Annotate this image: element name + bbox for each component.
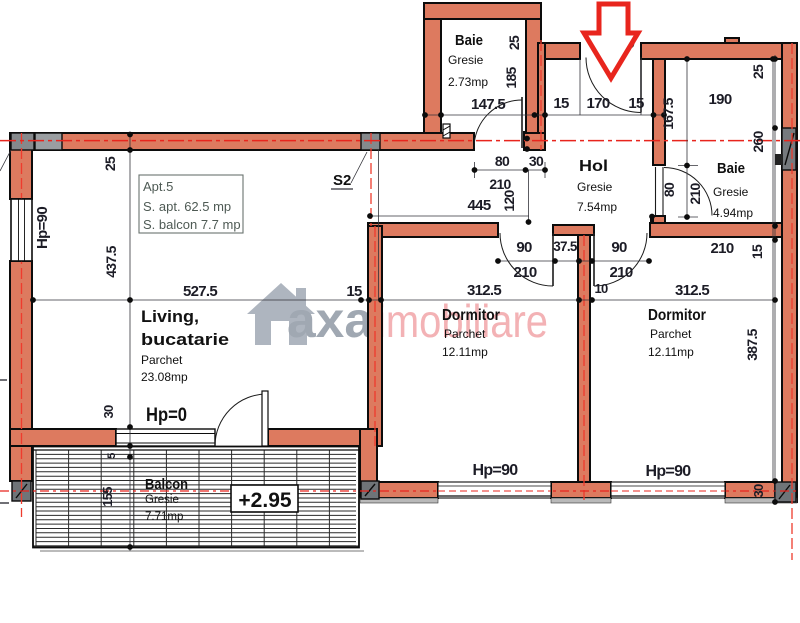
svg-text:210: 210 — [687, 182, 703, 204]
svg-text:120: 120 — [501, 189, 517, 211]
svg-text:Gresie: Gresie — [577, 180, 613, 194]
svg-text:4.94mp: 4.94mp — [713, 206, 753, 220]
svg-text:155: 155 — [100, 487, 115, 507]
svg-text:12.11mp: 12.11mp — [442, 345, 488, 359]
svg-text:210: 210 — [610, 264, 633, 281]
svg-text:527.5: 527.5 — [183, 283, 217, 300]
svg-text:23.08mp: 23.08mp — [141, 370, 188, 384]
svg-text:bucatarie: bucatarie — [141, 330, 229, 349]
svg-text:190: 190 — [709, 91, 732, 108]
svg-text:210: 210 — [514, 264, 537, 281]
svg-text:15: 15 — [553, 95, 569, 112]
svg-text:2.73mp: 2.73mp — [448, 75, 488, 89]
svg-text:S. apt. 62.5 mp: S. apt. 62.5 mp — [143, 199, 231, 214]
svg-text:147.5: 147.5 — [471, 96, 505, 113]
svg-text:10: 10 — [594, 281, 608, 296]
svg-text:90: 90 — [516, 239, 532, 256]
svg-text:25: 25 — [750, 64, 766, 79]
svg-text:30: 30 — [101, 405, 116, 419]
svg-text:Gresie: Gresie — [145, 494, 179, 506]
svg-text:25: 25 — [102, 156, 118, 171]
svg-text:Hol: Hol — [579, 158, 608, 175]
svg-text:170: 170 — [587, 95, 610, 112]
svg-text:312.5: 312.5 — [675, 282, 709, 299]
svg-text:210: 210 — [489, 176, 511, 192]
svg-text:Baie: Baie — [717, 160, 745, 177]
svg-text:S. balcon 7.7 mp: S. balcon 7.7 mp — [143, 217, 241, 232]
svg-text:15: 15 — [346, 283, 362, 300]
svg-text:Dormitor: Dormitor — [442, 307, 500, 324]
svg-text:437.5: 437.5 — [103, 245, 119, 277]
svg-text:80: 80 — [495, 153, 510, 169]
svg-text:Dormitor: Dormitor — [648, 307, 706, 324]
svg-text:25: 25 — [506, 35, 522, 50]
svg-text:Balcon: Balcon — [145, 477, 188, 493]
svg-text:12.11mp: 12.11mp — [648, 345, 694, 359]
svg-text:185: 185 — [503, 66, 519, 88]
svg-text:S2: S2 — [333, 172, 351, 189]
svg-text:445: 445 — [468, 197, 491, 214]
svg-text:Hp=90: Hp=90 — [473, 462, 519, 479]
svg-text:167.5: 167.5 — [660, 97, 676, 129]
svg-text:Living,: Living, — [141, 307, 199, 326]
svg-text:Hp=90: Hp=90 — [646, 463, 692, 480]
svg-text:5: 5 — [106, 453, 118, 459]
svg-text:Hp=90: Hp=90 — [34, 207, 51, 249]
svg-text:30: 30 — [529, 153, 544, 169]
svg-text:312.5: 312.5 — [467, 282, 501, 299]
svg-text:Parchet: Parchet — [444, 327, 486, 341]
svg-text:Gresie: Gresie — [713, 185, 749, 199]
svg-text:210: 210 — [711, 240, 734, 257]
svg-text:7.71mp: 7.71mp — [145, 511, 183, 523]
svg-text:260: 260 — [750, 130, 766, 152]
svg-text:Parchet: Parchet — [141, 353, 183, 367]
svg-text:7.54mp: 7.54mp — [577, 200, 617, 214]
svg-text:Parchet: Parchet — [650, 327, 692, 341]
svg-text:Apt.5: Apt.5 — [143, 179, 173, 194]
svg-text:90: 90 — [611, 239, 627, 256]
svg-text:+2.95: +2.95 — [238, 489, 291, 512]
svg-text:15: 15 — [749, 244, 765, 259]
svg-text:80: 80 — [661, 182, 677, 197]
svg-text:30: 30 — [751, 484, 766, 498]
svg-text:387.5: 387.5 — [744, 328, 760, 360]
svg-text:37.5: 37.5 — [553, 239, 578, 254]
svg-text:Hp=0: Hp=0 — [146, 405, 187, 426]
svg-text:Baie: Baie — [455, 32, 483, 49]
svg-text:15: 15 — [628, 95, 644, 112]
svg-text:Gresie: Gresie — [448, 53, 484, 67]
